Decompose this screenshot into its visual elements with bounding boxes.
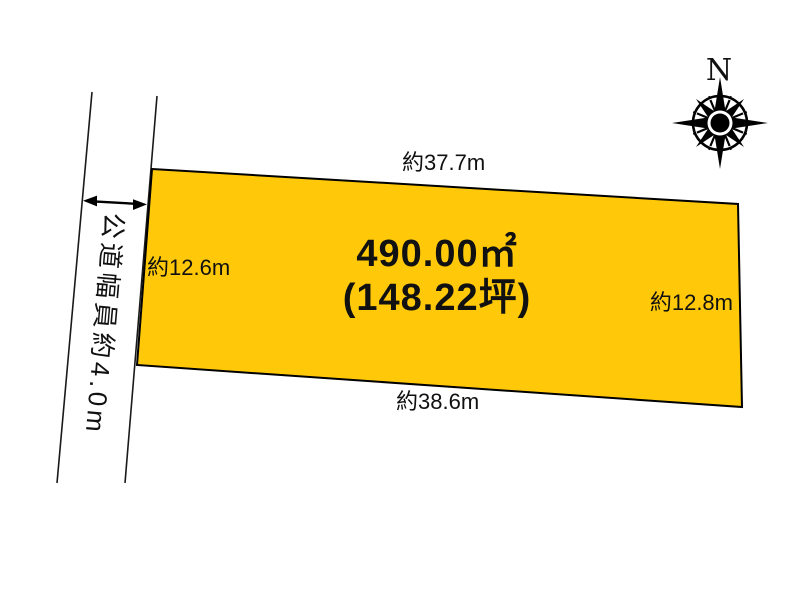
land-plot-diagram: N 約37.7m 約38.6m 約12.6m 約12.8m 490.00㎡ (1… (0, 0, 800, 600)
dimension-left-label: 約12.6m (147, 256, 230, 280)
compass-rose-icon (672, 77, 768, 169)
road-width-arrow-icon (83, 196, 147, 210)
plot-area-label: 490.00㎡ (148.22坪) (237, 232, 637, 320)
plot-area-sqm: 490.00㎡ (237, 232, 637, 276)
plot-area-tsubo: (148.22坪) (237, 276, 637, 320)
dimension-bottom-label: 約38.6m (396, 390, 479, 414)
dimension-right-label: 約12.8m (650, 291, 733, 315)
compass-north-label: N (702, 54, 736, 87)
dimension-top-label: 約37.7m (402, 151, 485, 175)
compass-center-dot (711, 114, 730, 133)
